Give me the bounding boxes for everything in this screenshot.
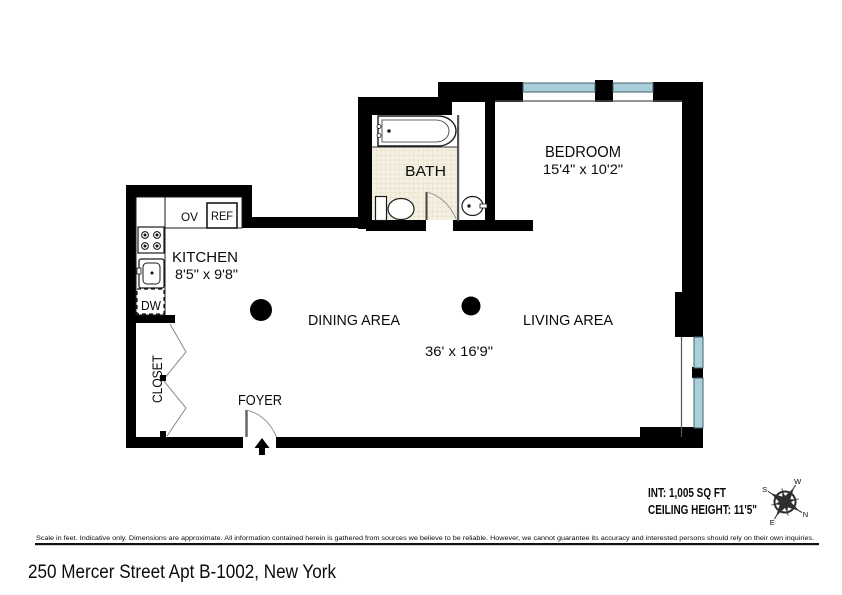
living-area-label: LIVING AREA xyxy=(523,312,613,329)
vestibule-sink xyxy=(462,197,487,216)
windows xyxy=(523,83,703,428)
wall-bath-left xyxy=(358,97,372,229)
column-dining xyxy=(250,299,272,321)
wall-top-chunk xyxy=(438,82,523,102)
compass-north-label: N xyxy=(803,510,808,519)
wall-right-pier xyxy=(675,292,703,337)
wall-window-pier-top xyxy=(595,80,613,102)
foyer-label: FOYER xyxy=(238,393,282,409)
wall-window-separator-right xyxy=(692,367,703,378)
toilet xyxy=(376,197,415,221)
entry-arrow-icon xyxy=(255,438,270,455)
column-living xyxy=(462,297,481,316)
wall-closet-top xyxy=(126,315,175,323)
footer-rule xyxy=(35,543,819,545)
dishwasher-label: DW xyxy=(141,299,161,313)
stove xyxy=(138,227,164,253)
bedroom-window-1 xyxy=(523,83,595,92)
living-window-2 xyxy=(694,378,703,428)
bedroom-label: BEDROOM xyxy=(545,144,621,161)
kitchen-sink xyxy=(137,259,164,288)
disclaimer-text: Scale in feet. Indicative only. Dimensio… xyxy=(36,535,814,542)
ceiling-height-text: CEILING HEIGHT: 11'5" xyxy=(648,502,757,517)
closet-label: CLOSET xyxy=(150,355,165,403)
compass-south-label: S xyxy=(762,485,767,494)
bedroom-window-2 xyxy=(613,83,653,92)
compass-rose-icon: N E S W xyxy=(757,474,812,529)
entry-door xyxy=(247,410,277,437)
floorplan-svg: BEDROOM 15'4" x 10'2" BATH KITCHEN 8'5" … xyxy=(0,0,842,595)
living-dining-dims: 36' x 16'9" xyxy=(425,344,493,359)
kitchen-dims: 8'5" x 9'8" xyxy=(175,267,238,282)
dining-area-label: DINING AREA xyxy=(308,312,400,329)
wall-right xyxy=(682,97,703,292)
wall-bottom-left-of-door xyxy=(126,437,243,448)
wall-bottom-right-of-door xyxy=(276,437,703,448)
compass-west-label: W xyxy=(794,477,802,486)
wall-bath-bottom-left xyxy=(366,220,426,231)
compass-east-label: E xyxy=(770,518,775,527)
bath-partition-line xyxy=(457,115,459,221)
floorplan-page: BEDROOM 15'4" x 10'2" BATH KITCHEN 8'5" … xyxy=(0,0,842,595)
bath-label: BATH xyxy=(405,163,446,180)
bedroom-dims: 15'4" x 10'2" xyxy=(543,161,623,177)
interior-area-text: INT: 1,005 SQ FT xyxy=(648,485,726,500)
wall-kitchen-top xyxy=(126,185,252,197)
wall-corridor-top xyxy=(242,217,366,228)
wall-bath-top xyxy=(358,97,452,115)
kitchen-label: KITCHEN xyxy=(172,249,238,266)
address-title: 250 Mercer Street Apt B-1002, New York xyxy=(28,562,336,583)
oven-label: OV xyxy=(181,210,198,224)
living-window-1 xyxy=(694,337,703,368)
wall-bath-bottom-right xyxy=(453,220,533,231)
fridge-label: REF xyxy=(211,209,233,223)
